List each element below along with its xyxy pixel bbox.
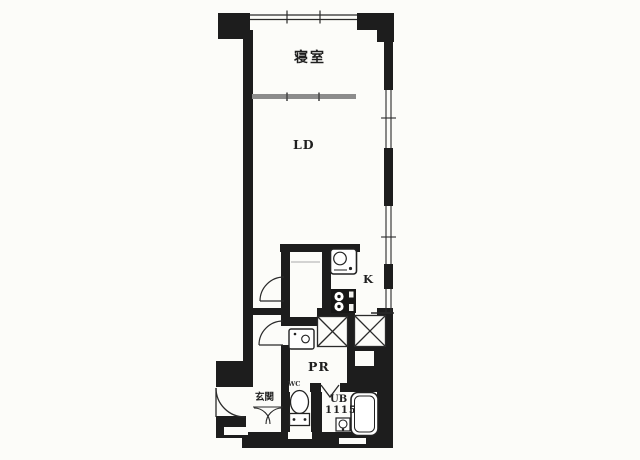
living-dining-label: LD [293, 139, 315, 152]
window-top [250, 11, 357, 24]
corridor-door-arc [260, 277, 284, 301]
entrance-door-arc [216, 388, 245, 417]
pipe-space-right [355, 316, 386, 347]
partition-ticks [287, 93, 319, 102]
kitchen-sink [331, 249, 357, 274]
floor-plan: 寝室 LD K PR 玄関 WC UB 1115 [0, 0, 640, 460]
bedroom-label: 寝室 [294, 51, 326, 65]
water-closet-label: WC [288, 381, 300, 388]
entrance-label: 玄関 [255, 393, 274, 403]
shoe-cabinet-doors [253, 407, 283, 424]
kitchen-label: K [363, 274, 373, 286]
unit-bath-label: UB [330, 395, 347, 405]
washbasin [289, 329, 314, 349]
window-right [371, 90, 396, 313]
stove [331, 289, 356, 313]
toilet [290, 391, 310, 426]
pipe-space-left [318, 317, 348, 347]
plan-linework [0, 0, 640, 460]
powder-room-label: PR [308, 361, 330, 374]
bath-washbasin [336, 418, 350, 431]
powder-room-door-arc [259, 321, 283, 345]
unit-bath-size-label: 1115 [325, 406, 357, 416]
